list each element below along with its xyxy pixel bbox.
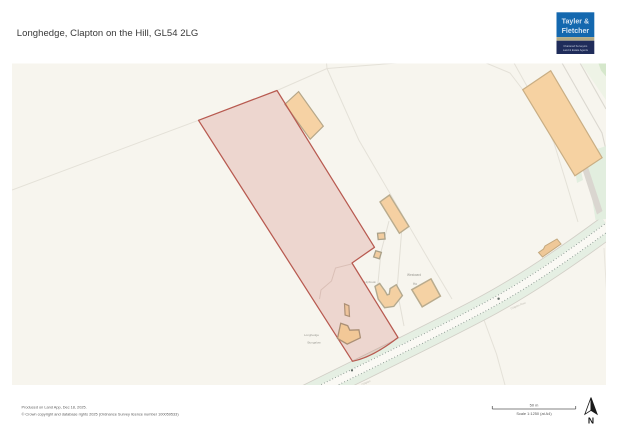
svg-text:Chartered Surveyors: Chartered Surveyors	[563, 44, 588, 48]
svg-text:Land & Estate Agents: Land & Estate Agents	[563, 48, 589, 52]
svg-text:Fletcher: Fletcher	[562, 27, 590, 35]
svg-text:N: N	[588, 415, 594, 425]
svg-text:Longhedge, Clapton on the Hill: Longhedge, Clapton on the Hill, GL54 2LG	[17, 28, 199, 39]
svg-text:Westward: Westward	[407, 273, 421, 277]
svg-text:© Crown copyright and database: © Crown copyright and database rights 20…	[22, 413, 180, 417]
svg-text:Longhedge: Longhedge	[304, 333, 319, 337]
svg-text:Lilybrook: Lilybrook	[365, 280, 377, 284]
svg-text:Bungalow: Bungalow	[308, 341, 322, 345]
svg-text:Produced on Land App, Dec 18,: Produced on Land App, Dec 18, 2025.	[22, 406, 87, 410]
svg-text:Ho: Ho	[413, 282, 417, 286]
svg-text:Tayler &: Tayler &	[562, 18, 589, 26]
svg-text:50 m: 50 m	[530, 402, 539, 407]
svg-text:Scale 1:1250 (at A4): Scale 1:1250 (at A4)	[516, 411, 552, 416]
